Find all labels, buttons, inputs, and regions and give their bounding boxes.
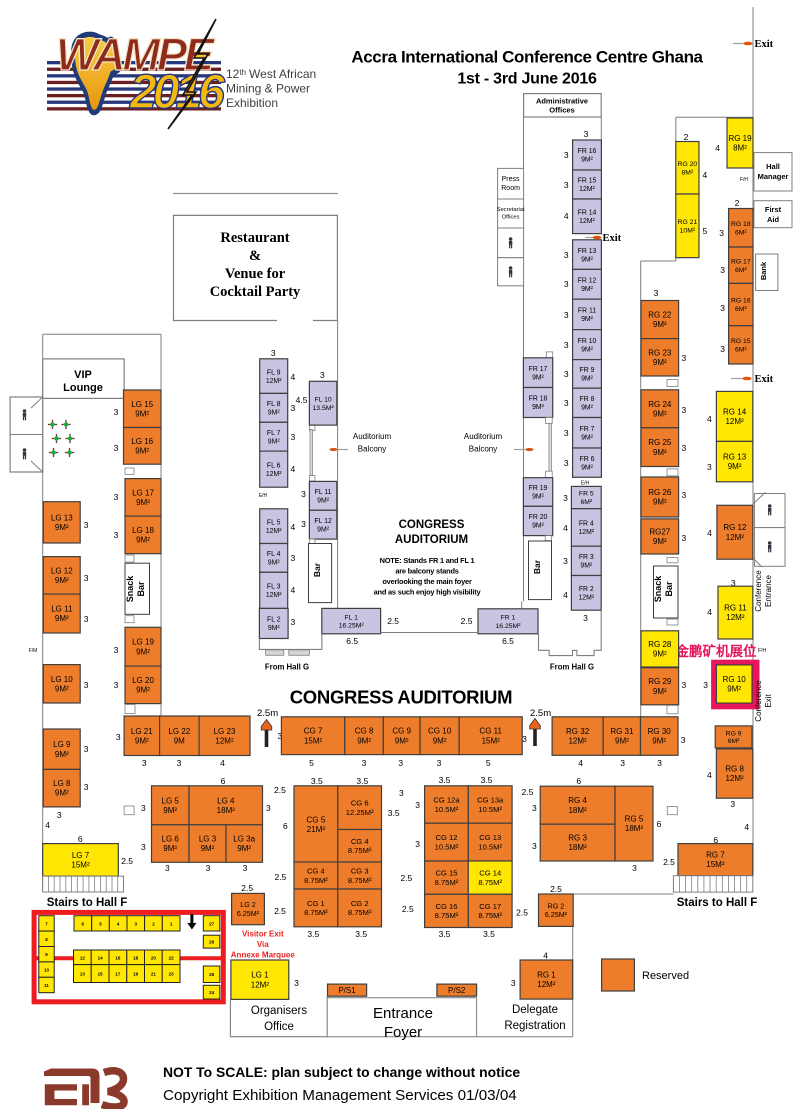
svg-text:3: 3	[415, 839, 420, 849]
svg-text:11: 11	[44, 983, 49, 988]
svg-text:AUDITORIUM: AUDITORIUM	[395, 534, 468, 546]
svg-text:LG 2312M²: LG 2312M²	[214, 727, 236, 746]
svg-text:CG 48.75M²: CG 48.75M²	[348, 837, 372, 855]
svg-text:RG 1212M²: RG 1212M²	[723, 523, 747, 542]
svg-text:4: 4	[707, 528, 712, 538]
svg-text:19: 19	[133, 972, 139, 977]
svg-text:Office: Office	[264, 1021, 294, 1033]
svg-text:4: 4	[703, 170, 708, 180]
svg-text:21: 21	[151, 972, 157, 977]
svg-text:FL 79M²: FL 79M²	[267, 430, 281, 446]
svg-text:5: 5	[703, 226, 708, 236]
svg-text:4: 4	[707, 770, 712, 780]
svg-text:LG 715M²: LG 715M²	[71, 851, 90, 870]
svg-text:3: 3	[719, 228, 724, 238]
svg-text:RG 418M²: RG 418M²	[568, 796, 587, 815]
svg-text:3: 3	[682, 533, 687, 543]
svg-text:CG 1310.5M²: CG 1310.5M²	[478, 833, 502, 851]
svg-text:4: 4	[563, 590, 568, 600]
svg-text:FR 79M²: FR 79M²	[580, 426, 595, 442]
svg-text:3: 3	[564, 180, 569, 190]
svg-text:22: 22	[169, 955, 175, 960]
svg-text:3: 3	[564, 250, 569, 260]
svg-text:CONGRESS: CONGRESS	[399, 519, 465, 531]
svg-text:CG 38.75M²: CG 38.75M²	[348, 867, 372, 885]
svg-text:3: 3	[620, 758, 625, 768]
svg-text:Conference: Conference	[754, 680, 763, 722]
svg-text:3: 3	[84, 680, 89, 690]
svg-text:are balcony stands: are balcony stands	[395, 567, 458, 576]
svg-text:FL 312M²: FL 312M²	[266, 584, 282, 600]
svg-text:Lounge: Lounge	[63, 382, 103, 394]
svg-text:Offices: Offices	[549, 106, 574, 115]
svg-text:RG 715M²: RG 715M²	[706, 851, 725, 870]
svg-text:6: 6	[576, 776, 581, 786]
svg-text:2.5: 2.5	[274, 906, 286, 916]
svg-text:Exit: Exit	[755, 374, 774, 385]
svg-text:3.5: 3.5	[311, 776, 323, 786]
svg-text:3: 3	[720, 265, 725, 275]
svg-text:3: 3	[682, 405, 687, 415]
svg-text:FR 69M²: FR 69M²	[580, 456, 595, 472]
svg-text:3: 3	[84, 744, 89, 754]
svg-text:FR 212M²: FR 212M²	[578, 586, 594, 602]
svg-text:3: 3	[243, 863, 248, 873]
svg-text:Snack: Snack	[125, 575, 135, 603]
svg-text:3: 3	[114, 407, 119, 417]
svg-text:Aid: Aid	[767, 215, 780, 224]
svg-text:16: 16	[115, 955, 121, 960]
svg-text:From Hall G: From Hall G	[550, 663, 594, 672]
svg-text:3: 3	[114, 492, 119, 502]
svg-text:4: 4	[707, 607, 712, 617]
svg-text:3.5: 3.5	[388, 808, 400, 818]
svg-text:Bar: Bar	[312, 562, 322, 577]
svg-text:4: 4	[291, 585, 296, 595]
svg-text:NOT To SCALE: plan subject to: NOT To SCALE: plan subject to change wit…	[163, 1064, 520, 1080]
svg-text:CG 12a10.5M²: CG 12a10.5M²	[433, 796, 460, 814]
svg-text:3: 3	[437, 758, 442, 768]
svg-text:2.5: 2.5	[663, 857, 675, 867]
svg-text:Conference: Conference	[754, 570, 763, 612]
svg-text:3: 3	[682, 443, 687, 453]
svg-text:3.5: 3.5	[307, 929, 319, 939]
svg-text:Foyer: Foyer	[384, 1024, 422, 1041]
svg-text:FR 56M²: FR 56M²	[579, 491, 594, 506]
svg-text:4.5: 4.5	[296, 395, 308, 405]
svg-text:Reserved: Reserved	[642, 970, 689, 982]
svg-text:2: 2	[684, 132, 689, 142]
svg-text:P/S2: P/S2	[448, 986, 466, 995]
svg-text:3: 3	[165, 863, 170, 873]
svg-text:FL 1013.5M²: FL 1013.5M²	[313, 396, 335, 411]
svg-text:6: 6	[283, 821, 288, 831]
svg-text:Auditorium: Auditorium	[464, 432, 503, 441]
svg-text:3.5: 3.5	[481, 775, 493, 785]
svg-text:3: 3	[320, 370, 325, 380]
svg-text:3: 3	[682, 680, 687, 690]
svg-text:3: 3	[563, 556, 568, 566]
svg-text:CG 18.75M²: CG 18.75M²	[304, 899, 328, 917]
svg-text:2.5: 2.5	[550, 884, 562, 894]
svg-text:20: 20	[151, 955, 157, 960]
svg-text:3: 3	[654, 288, 659, 298]
svg-text:金鹏矿机展位: 金鹏矿机展位	[675, 643, 757, 659]
svg-text:2016: 2016	[129, 66, 225, 119]
svg-text:Entrance: Entrance	[764, 574, 773, 607]
svg-text:6: 6	[78, 834, 83, 844]
svg-text:5: 5	[486, 758, 491, 768]
svg-text:and as such enjoy high visibil: and as such enjoy high visibility	[374, 588, 482, 597]
svg-text:3: 3	[84, 520, 89, 530]
svg-text:RG 96M²: RG 96M²	[726, 731, 742, 746]
svg-text:10: 10	[44, 968, 50, 973]
svg-text:3: 3	[563, 493, 568, 503]
svg-text:3: 3	[564, 150, 569, 160]
svg-text:4: 4	[564, 211, 569, 221]
svg-text:Snack: Snack	[653, 575, 663, 603]
svg-text:Accra International Conference: Accra International Conference Centre Gh…	[351, 48, 703, 67]
svg-text:2.5m: 2.5m	[530, 708, 551, 719]
svg-text:2.5: 2.5	[387, 616, 399, 626]
svg-text:2: 2	[735, 198, 740, 208]
svg-text:Bank: Bank	[759, 261, 768, 280]
svg-text:Cocktail Party: Cocktail Party	[210, 284, 301, 300]
svg-text:3: 3	[141, 803, 146, 813]
svg-text:3: 3	[57, 810, 62, 820]
svg-text:3: 3	[511, 978, 516, 988]
svg-text:RG 318M²: RG 318M²	[568, 834, 587, 853]
svg-text:2.5: 2.5	[274, 872, 286, 882]
svg-text:Entrance: Entrance	[373, 1005, 433, 1022]
svg-text:3: 3	[114, 680, 119, 690]
svg-text:Via: Via	[257, 940, 269, 949]
svg-text:CG 28.75M²: CG 28.75M²	[348, 899, 372, 917]
svg-text:Registration: Registration	[504, 1020, 565, 1032]
svg-text:3: 3	[564, 428, 569, 438]
svg-text:3: 3	[301, 489, 306, 499]
svg-text:Secretariat: Secretariat	[497, 207, 525, 213]
svg-text:3.5: 3.5	[483, 929, 495, 939]
svg-text:Visitor Exit: Visitor Exit	[242, 930, 284, 939]
svg-text:FL 89M²: FL 89M²	[267, 401, 281, 417]
svg-text:E/H: E/H	[581, 481, 590, 487]
svg-text:2.5: 2.5	[274, 785, 286, 795]
svg-text:3: 3	[294, 978, 299, 988]
svg-text:3: 3	[564, 310, 569, 320]
svg-text:RG 1112M²: RG 1112M²	[724, 604, 747, 623]
svg-text:3: 3	[291, 432, 296, 442]
svg-text:4: 4	[563, 523, 568, 533]
svg-text:3: 3	[206, 863, 211, 873]
svg-text:4: 4	[715, 143, 720, 153]
svg-text:4: 4	[220, 758, 225, 768]
svg-text:3: 3	[682, 490, 687, 500]
svg-text:3: 3	[114, 443, 119, 453]
svg-text:CG 48.75M²: CG 48.75M²	[304, 867, 328, 885]
svg-text:15: 15	[98, 972, 104, 977]
svg-text:First: First	[765, 205, 782, 214]
svg-text:3: 3	[271, 348, 276, 358]
svg-text:FL 29M²: FL 29M²	[267, 617, 281, 633]
svg-text:3: 3	[583, 613, 588, 623]
svg-text:Balcony: Balcony	[358, 445, 386, 454]
svg-text:Exit: Exit	[764, 694, 773, 708]
svg-text:Venue for: Venue for	[225, 266, 286, 282]
svg-text:3: 3	[362, 758, 367, 768]
svg-text:Exit: Exit	[755, 39, 774, 50]
svg-text:5: 5	[309, 758, 314, 768]
svg-text:RG 112M²: RG 112M²	[537, 971, 556, 990]
svg-text:2.5: 2.5	[400, 873, 412, 883]
svg-text:Hall: Hall	[766, 162, 780, 171]
svg-text:RG 26.25M²: RG 26.25M²	[545, 901, 568, 919]
svg-text:FR 39M²: FR 39M²	[579, 554, 594, 570]
svg-text:CG 178.75M²: CG 178.75M²	[478, 902, 502, 920]
svg-text:17: 17	[115, 972, 121, 977]
svg-text:Press: Press	[502, 176, 520, 183]
svg-text:CG 1115M²: CG 1115M²	[479, 727, 502, 746]
svg-text:Balcony: Balcony	[469, 445, 497, 454]
svg-text:4: 4	[291, 464, 296, 474]
svg-text:3: 3	[522, 734, 527, 744]
svg-text:RG 2110M²: RG 2110M²	[678, 219, 698, 234]
svg-text:Organisers: Organisers	[251, 1005, 307, 1017]
svg-text:Room: Room	[501, 185, 520, 192]
svg-text:3: 3	[399, 788, 404, 798]
svg-text:3: 3	[142, 758, 147, 768]
svg-text:Annexe Marquee: Annexe Marquee	[231, 951, 296, 960]
svg-text:F/H: F/H	[740, 177, 748, 183]
svg-text:6: 6	[221, 776, 226, 786]
svg-text:3: 3	[681, 735, 686, 745]
svg-text:4: 4	[578, 758, 583, 768]
svg-text:14: 14	[98, 955, 104, 960]
svg-text:Offices: Offices	[502, 215, 520, 221]
svg-text:Delegate: Delegate	[512, 1004, 558, 1016]
svg-text:3: 3	[564, 279, 569, 289]
svg-text:&: &	[249, 248, 261, 264]
svg-text:FR 1512M²: FR 1512M²	[578, 178, 597, 194]
svg-text:2.5m: 2.5m	[257, 708, 278, 719]
svg-text:3.5: 3.5	[439, 775, 451, 785]
svg-text:6: 6	[657, 819, 662, 829]
svg-text:3: 3	[114, 530, 119, 540]
svg-text:Exhibition: Exhibition	[226, 96, 278, 110]
svg-text:12: 12	[80, 955, 86, 960]
svg-text:FL 49M²: FL 49M²	[267, 551, 281, 567]
svg-text:3.5: 3.5	[356, 776, 368, 786]
svg-text:2.5: 2.5	[121, 856, 133, 866]
svg-text:Stairs to Hall F: Stairs to Hall F	[47, 897, 128, 909]
svg-text:FR 1412M²: FR 1412M²	[578, 210, 597, 226]
svg-text:3: 3	[532, 841, 537, 851]
svg-text:3: 3	[720, 344, 725, 354]
svg-text:3: 3	[730, 799, 735, 809]
svg-text:Administrative: Administrative	[536, 97, 588, 106]
svg-text:LG 418M²: LG 418M²	[217, 796, 236, 815]
svg-text:From Hall G: From Hall G	[265, 663, 309, 672]
svg-text:3: 3	[584, 129, 589, 139]
svg-text:4: 4	[707, 414, 712, 424]
svg-text:3: 3	[682, 353, 687, 363]
svg-text:CG 521M²: CG 521M²	[306, 815, 326, 834]
svg-text:3: 3	[116, 732, 121, 742]
svg-text:3: 3	[564, 458, 569, 468]
svg-text:FR 412M²: FR 412M²	[578, 521, 594, 537]
svg-text:Stairs to Hall F: Stairs to Hall F	[677, 897, 758, 909]
svg-text:FL 612M²: FL 612M²	[266, 462, 282, 478]
svg-text:3: 3	[657, 758, 662, 768]
svg-text:24: 24	[209, 990, 215, 995]
svg-text:3: 3	[84, 573, 89, 583]
svg-text:3: 3	[177, 758, 182, 768]
svg-text:25: 25	[209, 972, 215, 977]
svg-text:4: 4	[291, 372, 296, 382]
svg-text:23: 23	[169, 972, 175, 977]
svg-text:18: 18	[133, 955, 139, 960]
svg-text:FR 99M²: FR 99M²	[580, 367, 595, 383]
svg-text:3: 3	[564, 340, 569, 350]
svg-text:3.5: 3.5	[439, 929, 451, 939]
svg-text:3: 3	[301, 519, 306, 529]
svg-text:3: 3	[291, 553, 296, 563]
svg-text:CG 148.75M²: CG 148.75M²	[478, 869, 502, 887]
svg-text:3: 3	[141, 842, 146, 852]
svg-text:2.5: 2.5	[461, 616, 473, 626]
svg-text:overlooking the main foyer: overlooking the main foyer	[382, 577, 472, 586]
svg-text:RG 1412M²: RG 1412M²	[723, 407, 747, 426]
svg-text:3: 3	[703, 680, 708, 690]
svg-text:3: 3	[114, 645, 119, 655]
svg-text:6.5: 6.5	[502, 636, 514, 646]
svg-text:CG 168.75M²: CG 168.75M²	[435, 902, 459, 920]
svg-text:3: 3	[84, 614, 89, 624]
svg-text:2.5: 2.5	[516, 908, 528, 918]
svg-text:4: 4	[291, 522, 296, 532]
svg-text:Bar: Bar	[136, 581, 146, 597]
svg-text:Copyright Exhibition Managemen: Copyright Exhibition Management Services…	[163, 1087, 517, 1104]
svg-text:4: 4	[744, 822, 749, 832]
svg-text:Bar: Bar	[664, 581, 674, 597]
svg-text:2.5: 2.5	[402, 904, 414, 914]
svg-text:FL 512M²: FL 512M²	[266, 519, 282, 535]
svg-text:VIP: VIP	[74, 369, 92, 381]
svg-text:Restaurant: Restaurant	[220, 230, 289, 246]
svg-text:3: 3	[564, 369, 569, 379]
svg-text:NOTE: Stands FR 1 and FL 1: NOTE: Stands FR 1 and FL 1	[380, 556, 475, 565]
svg-text:RG 518M²: RG 518M²	[625, 815, 644, 834]
svg-text:P/S1: P/S1	[338, 986, 356, 995]
svg-text:F/M: F/M	[29, 648, 38, 654]
svg-text:3: 3	[415, 800, 420, 810]
svg-text:3: 3	[720, 303, 725, 313]
svg-text:3.5: 3.5	[355, 929, 367, 939]
svg-text:26: 26	[209, 940, 215, 945]
svg-text:13: 13	[80, 972, 86, 977]
svg-text:Bar: Bar	[532, 559, 542, 574]
svg-text:6.5: 6.5	[346, 636, 358, 646]
svg-text:2.5: 2.5	[522, 787, 534, 797]
svg-text:3: 3	[266, 803, 271, 813]
svg-text:LG 59M²: LG 59M²	[162, 796, 180, 815]
svg-text:CONGRESS AUDITORIUM: CONGRESS AUDITORIUM	[290, 687, 512, 708]
svg-text:CG 1210.5M²: CG 1210.5M²	[435, 833, 459, 851]
svg-text:LG 99M²: LG 99M²	[53, 740, 71, 759]
svg-text:Mining & Power: Mining & Power	[226, 82, 310, 96]
svg-text:4: 4	[543, 951, 548, 961]
svg-text:CG 13a10.5M²: CG 13a10.5M²	[477, 796, 504, 814]
svg-text:E/H: E/H	[259, 493, 268, 499]
svg-text:3: 3	[84, 782, 89, 792]
svg-text:3: 3	[291, 617, 296, 627]
svg-text:27: 27	[209, 921, 215, 926]
svg-text:CG 715M²: CG 715M²	[304, 727, 323, 746]
svg-text:Manager: Manager	[758, 172, 789, 181]
svg-text:3: 3	[564, 398, 569, 408]
svg-text:LG 69M²: LG 69M²	[162, 835, 180, 854]
svg-text:4: 4	[45, 820, 50, 830]
svg-text:Exit: Exit	[603, 233, 622, 244]
svg-text:LG 112M²: LG 112M²	[251, 971, 270, 990]
svg-text:RG 3212M²: RG 3212M²	[566, 727, 590, 746]
svg-text:FR 89M²: FR 89M²	[580, 396, 595, 412]
svg-text:LG 39M²: LG 39M²	[199, 835, 217, 854]
svg-text:RG 812M²: RG 812M²	[725, 765, 744, 784]
svg-text:FL 912M²: FL 912M²	[266, 369, 282, 385]
svg-text:Auditorium: Auditorium	[353, 432, 392, 441]
svg-text:3: 3	[707, 462, 712, 472]
svg-text:3: 3	[532, 803, 537, 813]
svg-text:F/H: F/H	[758, 648, 766, 654]
svg-text:3: 3	[398, 758, 403, 768]
svg-text:CG 158.75M²: CG 158.75M²	[435, 869, 459, 887]
svg-text:LG 89M²: LG 89M²	[53, 779, 71, 798]
svg-text:1st - 3rd June 2016: 1st - 3rd June 2016	[457, 71, 597, 88]
svg-text:2.5: 2.5	[241, 883, 253, 893]
svg-text:3: 3	[632, 863, 637, 873]
